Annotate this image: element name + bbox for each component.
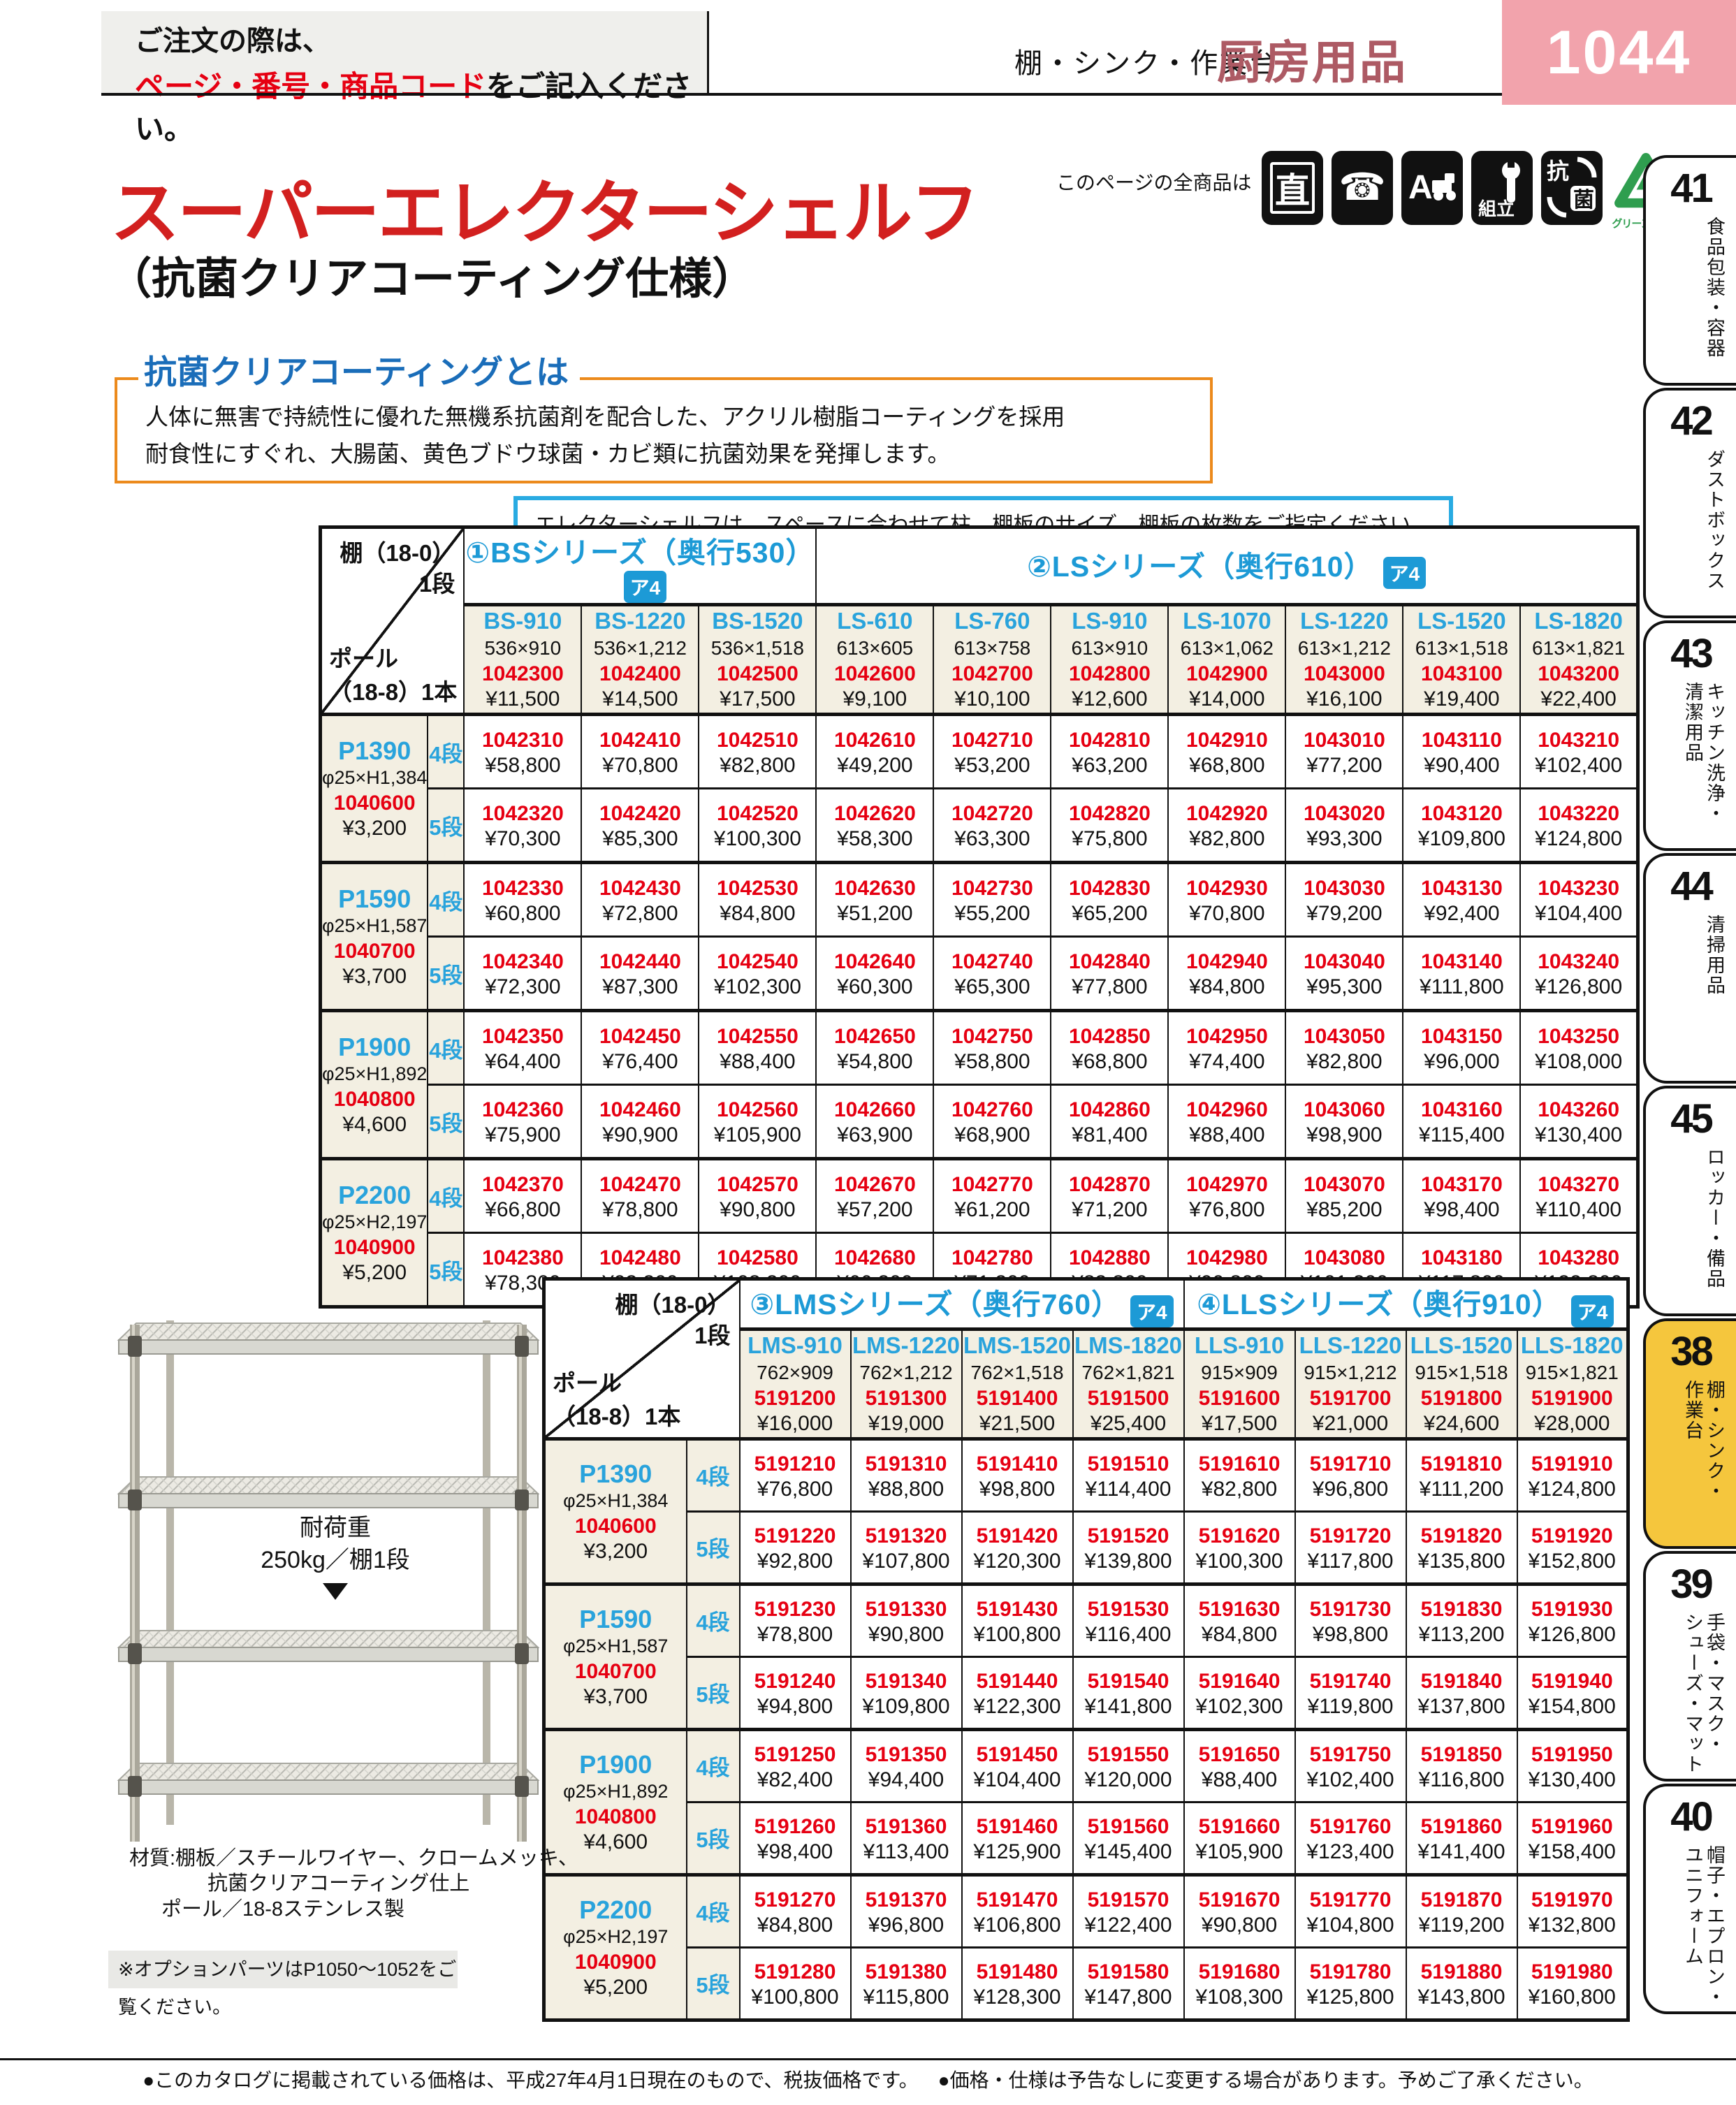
corner-shelf-label: 棚（18-0） — [340, 534, 455, 568]
pole-code: 1040900 — [546, 1951, 686, 1974]
product-price: ¥51,200 — [817, 902, 933, 926]
product-code: 5191840 — [1407, 1670, 1517, 1694]
product-code: 1043050 — [1286, 1025, 1402, 1049]
product-price: ¥63,200 — [1051, 754, 1167, 778]
product-code: 5191440 — [963, 1670, 1072, 1694]
product-price: ¥76,400 — [582, 1050, 698, 1074]
product-code: 1042650 — [817, 1025, 933, 1049]
product-price: ¥63,300 — [934, 827, 1050, 851]
product-price: ¥76,800 — [741, 1478, 850, 1501]
price-cell: 5191330¥90,800 — [851, 1584, 962, 1656]
product-code: 1043040 — [1286, 950, 1402, 974]
product-price: ¥107,800 — [852, 1550, 961, 1573]
price-row: 5段5191280¥100,8005191380¥115,8005191480¥… — [544, 1947, 1628, 2020]
column-header-cell: LMS-1520762×1,5185191400¥21,500 — [962, 1329, 1073, 1438]
product-code: 1042380 — [465, 1246, 581, 1270]
product-code: 5191540 — [1074, 1670, 1183, 1694]
price-cell: 1042430¥72,800 — [581, 863, 699, 937]
product-price: ¥74,400 — [1169, 1050, 1285, 1074]
product-code: 1042460 — [582, 1098, 698, 1122]
load-capacity-title: 耐荷重 — [300, 1515, 371, 1541]
price-cell: 5191850¥116,800 — [1406, 1729, 1517, 1802]
product-code: 1042520 — [699, 802, 815, 826]
phone-order-icon: ☎ — [1332, 151, 1393, 225]
product-price: ¥66,800 — [465, 1198, 581, 1222]
price-cell: 1042720¥63,300 — [933, 789, 1051, 863]
product-price: ¥154,800 — [1518, 1695, 1627, 1719]
product-code: 5191800 — [1407, 1387, 1517, 1411]
product-price: ¥82,800 — [1169, 827, 1285, 851]
tab-number: 41 — [1646, 165, 1736, 212]
product-code: 1042410 — [582, 729, 698, 752]
product-code: 1042470 — [582, 1173, 698, 1197]
product-code: 1043020 — [1286, 802, 1402, 826]
column-size: 762×1,212 — [852, 1362, 961, 1384]
corner-shelf-unit: 1段 — [694, 1317, 730, 1350]
product-price: ¥11,500 — [465, 687, 581, 711]
column-size: 613×605 — [817, 637, 933, 660]
product-price: ¥87,300 — [582, 975, 698, 999]
tier-label: 5段 — [687, 1947, 740, 2020]
price-row: P2200φ25×H2,1971040900¥5,2004段5191270¥84… — [544, 1874, 1628, 1947]
price-cell: 5191860¥141,400 — [1406, 1802, 1517, 1874]
column-name: LMS-1520 — [963, 1332, 1072, 1359]
price-cell: 5191960¥158,400 — [1517, 1802, 1628, 1874]
product-price: ¥78,800 — [582, 1198, 698, 1222]
product-code: 1043000 — [1286, 662, 1402, 686]
price-cell: 1042660¥63,900 — [816, 1085, 933, 1159]
product-code: 1042770 — [934, 1173, 1050, 1197]
product-code: 1042810 — [1051, 729, 1167, 752]
price-cell: 1042520¥100,300 — [699, 789, 816, 863]
product-code: 5191940 — [1518, 1670, 1627, 1694]
product-code: 5191740 — [1296, 1670, 1406, 1694]
material-line1: 材質:棚板／スチールワイヤー、クロームメッキ、 — [129, 1846, 578, 1871]
price-cell: 1042410¥70,800 — [581, 715, 699, 789]
product-code: 5191470 — [963, 1888, 1072, 1912]
price-cell: 1042830¥65,200 — [1051, 863, 1168, 937]
price-cell: 1042440¥87,300 — [581, 937, 699, 1011]
product-code: 5191500 — [1074, 1387, 1183, 1411]
product-price: ¥68,800 — [1169, 754, 1285, 778]
column-name: BS-910 — [465, 608, 581, 634]
product-price: ¥125,900 — [963, 1840, 1072, 1864]
column-size: 762×909 — [741, 1362, 850, 1384]
tab-label: 手袋・マスク・ シューズ・マット — [1682, 1612, 1725, 1779]
tab-number: 40 — [1646, 1793, 1736, 1840]
price-cell: 1042860¥81,400 — [1051, 1085, 1168, 1159]
price-cell: 5191760¥123,400 — [1295, 1802, 1406, 1874]
product-code: 5191460 — [963, 1815, 1072, 1839]
series-badge: ア4 — [1130, 1295, 1174, 1327]
sidebar-tab-42: 42 ダストボックス — [1643, 388, 1736, 618]
price-cell: 5191270¥84,800 — [740, 1874, 851, 1947]
price-cell: 5191480¥128,300 — [962, 1947, 1073, 2020]
column-header-cell: BS-1520536×1,5181042500¥17,500 — [699, 605, 816, 715]
product-code: 5191340 — [852, 1670, 961, 1694]
column-header-cell: LMS-910762×9095191200¥16,000 — [740, 1329, 851, 1438]
price-cell: 5191240¥94,800 — [740, 1656, 851, 1729]
tier-label: 4段 — [428, 715, 464, 789]
order-instruction-box: ご注文の際は、 ページ・番号・商品コードをご記入ください。 — [101, 11, 709, 94]
product-price: ¥114,400 — [1074, 1478, 1183, 1501]
product-price: ¥130,400 — [1521, 1123, 1636, 1147]
product-price: ¥14,000 — [1169, 687, 1285, 711]
product-code: 5191520 — [1074, 1524, 1183, 1548]
price-cell: 5191920¥152,800 — [1517, 1511, 1628, 1584]
product-code: 5191280 — [741, 1960, 850, 1984]
sidebar-tab-45: 45 ロッカー・備品 — [1643, 1086, 1736, 1316]
product-price: ¥88,400 — [1169, 1123, 1285, 1147]
price-cell: 5191220¥92,800 — [740, 1511, 851, 1584]
product-price: ¥124,800 — [1521, 827, 1636, 851]
product-price: ¥61,200 — [934, 1198, 1050, 1222]
pole-size: φ25×H1,384 — [322, 767, 427, 789]
price-cell: 1043050¥82,800 — [1285, 1011, 1403, 1085]
price-cell: 5191910¥124,800 — [1517, 1438, 1628, 1511]
product-code: 5191950 — [1518, 1743, 1627, 1767]
product-price: ¥90,800 — [852, 1623, 961, 1647]
column-size: 536×1,212 — [582, 637, 698, 660]
product-code: 1043100 — [1403, 662, 1519, 686]
price-cell: 1042750¥58,800 — [933, 1011, 1051, 1085]
price-cell: 5191940¥154,800 — [1517, 1656, 1628, 1729]
tab-label: 帽子・エプロン・ ユニフォーム — [1682, 1845, 1725, 2011]
product-price: ¥124,800 — [1518, 1478, 1627, 1501]
section-label: 厨房用品 — [1217, 25, 1407, 92]
product-code: 1042840 — [1051, 950, 1167, 974]
product-price: ¥113,200 — [1407, 1623, 1517, 1647]
tier-label: 5段 — [687, 1511, 740, 1584]
product-price: ¥135,800 — [1407, 1550, 1517, 1573]
product-code: 1042910 — [1169, 729, 1285, 752]
column-header-cell: LS-1070613×1,0621042900¥14,000 — [1168, 605, 1285, 715]
price-cell: 1043260¥130,400 — [1520, 1085, 1637, 1159]
price-cell: 1042470¥78,800 — [581, 1159, 699, 1233]
product-price: ¥92,800 — [741, 1550, 850, 1573]
product-price: ¥100,800 — [963, 1623, 1072, 1647]
column-name: LS-610 — [817, 608, 933, 634]
product-price: ¥105,900 — [699, 1123, 815, 1147]
price-cell: 5191830¥113,200 — [1406, 1584, 1517, 1656]
series-badge: ア4 — [1571, 1295, 1614, 1327]
product-code: 1042830 — [1051, 877, 1167, 901]
price-cell: 5191620¥100,300 — [1184, 1511, 1295, 1584]
price-cell: 5191880¥143,800 — [1406, 1947, 1517, 2020]
product-code: 1042980 — [1169, 1246, 1285, 1270]
product-price: ¥19,000 — [852, 1412, 961, 1436]
page-number: 1044 — [1502, 0, 1736, 105]
price-cell: 5191210¥76,800 — [740, 1438, 851, 1511]
product-code: 1043030 — [1286, 877, 1402, 901]
product-price: ¥28,000 — [1518, 1412, 1627, 1436]
product-code: 1043170 — [1403, 1173, 1519, 1197]
product-price: ¥132,800 — [1518, 1914, 1627, 1937]
price-cell: 5191720¥117,800 — [1295, 1511, 1406, 1584]
product-code: 5191970 — [1518, 1888, 1627, 1912]
product-code: 1042680 — [817, 1246, 933, 1270]
product-code: 5191750 — [1296, 1743, 1406, 1767]
product-code: 5191780 — [1296, 1960, 1406, 1984]
product-price: ¥126,800 — [1518, 1623, 1627, 1647]
pole-code: 1040600 — [322, 792, 427, 815]
product-price: ¥120,300 — [963, 1550, 1072, 1573]
product-price: ¥100,300 — [1185, 1550, 1294, 1573]
product-price: ¥17,500 — [699, 687, 815, 711]
product-price: ¥130,400 — [1518, 1768, 1627, 1792]
column-name: LS-1070 — [1169, 608, 1285, 634]
column-header-cell: LS-760613×7581042700¥10,100 — [933, 605, 1051, 715]
price-cell: 5191950¥130,400 — [1517, 1729, 1628, 1802]
product-price: ¥102,400 — [1296, 1768, 1406, 1792]
column-size: 915×1,821 — [1518, 1362, 1627, 1384]
product-code: 5191880 — [1407, 1960, 1517, 1984]
tier-label: 4段 — [687, 1438, 740, 1511]
column-name: LMS-1220 — [852, 1332, 961, 1359]
price-row: P2200φ25×H2,1971040900¥5,2004段1042370¥66… — [321, 1159, 1638, 1233]
product-price: ¥98,900 — [1286, 1123, 1402, 1147]
product-code: 1043220 — [1521, 802, 1636, 826]
product-price: ¥70,800 — [582, 754, 698, 778]
pole-name: P1390 — [546, 1459, 686, 1489]
product-price: ¥84,800 — [1169, 975, 1285, 999]
price-cell: 5191730¥98,800 — [1295, 1584, 1406, 1656]
column-name: LMS-910 — [741, 1332, 850, 1359]
price-cell: 1042840¥77,800 — [1051, 937, 1168, 1011]
price-row: 5段1042320¥70,3001042420¥85,3001042520¥10… — [321, 789, 1638, 863]
corner-shelf-label: 棚（18-0） — [615, 1286, 730, 1320]
price-cell: 1042420¥85,300 — [581, 789, 699, 863]
tab-number: 38 — [1646, 1328, 1736, 1375]
product-price: ¥100,300 — [699, 827, 815, 851]
product-price: ¥77,200 — [1286, 754, 1402, 778]
order-instruction-emphasis: ページ・番号・商品コード — [135, 70, 486, 103]
pole-cell: P2200φ25×H2,1971040900¥5,200 — [321, 1159, 428, 1307]
price-cell: 1042560¥105,900 — [699, 1085, 816, 1159]
product-code: 1042430 — [582, 877, 698, 901]
price-cell: 1042870¥71,200 — [1051, 1159, 1168, 1233]
column-header-cell: BS-1220536×1,2121042400¥14,500 — [581, 605, 699, 715]
price-cell: 1042610¥49,200 — [816, 715, 933, 789]
product-code: 1043260 — [1521, 1098, 1636, 1122]
product-code: 1042300 — [465, 662, 581, 686]
product-code: 5191430 — [963, 1598, 1072, 1622]
product-price: ¥65,200 — [1051, 902, 1167, 926]
column-name: LS-910 — [1051, 608, 1167, 634]
column-name: BS-1520 — [699, 608, 815, 634]
column-size: 613×910 — [1051, 637, 1167, 660]
product-code: 1042440 — [582, 950, 698, 974]
price-cell: 1043010¥77,200 — [1285, 715, 1403, 789]
product-code: 5191400 — [963, 1387, 1072, 1411]
product-price: ¥16,000 — [741, 1412, 850, 1436]
price-cell: 5191230¥78,800 — [740, 1584, 851, 1656]
product-code: 1042750 — [934, 1025, 1050, 1049]
product-code: 1042900 — [1169, 662, 1285, 686]
product-code: 1043180 — [1403, 1246, 1519, 1270]
tier-label: 5段 — [687, 1656, 740, 1729]
sidebar-tab-39: 39 手袋・マスク・ シューズ・マット — [1643, 1551, 1736, 1782]
coating-line2: 耐食性にすぐれ、大腸菌、黄色ブドウ球菌・カビ類に抗菌効果を発揮します。 — [145, 435, 1210, 472]
price-cell: 1042940¥84,800 — [1168, 937, 1285, 1011]
pole-cell: P1390φ25×H1,3841040600¥3,200 — [321, 715, 428, 863]
product-price: ¥17,500 — [1185, 1412, 1294, 1436]
product-code: 1043080 — [1286, 1246, 1402, 1270]
product-price: ¥108,300 — [1185, 1986, 1294, 2009]
product-price: ¥22,400 — [1521, 687, 1636, 711]
product-code: 5191720 — [1296, 1524, 1406, 1548]
material-note: 材質:棚板／スチールワイヤー、クロームメッキ、 抗菌クリアコーティング仕上 ポー… — [129, 1846, 578, 1922]
price-cell: 5191630¥84,800 — [1184, 1584, 1295, 1656]
product-code: 1042850 — [1051, 1025, 1167, 1049]
product-price: ¥119,800 — [1296, 1695, 1406, 1719]
pole-price: ¥5,200 — [322, 1261, 427, 1285]
product-code: 5191260 — [741, 1815, 850, 1839]
price-cell: 1042930¥70,800 — [1168, 863, 1285, 937]
column-name: LS-1220 — [1286, 608, 1402, 634]
product-price: ¥64,400 — [465, 1050, 581, 1074]
product-price: ¥94,800 — [741, 1695, 850, 1719]
corner-pole-label: ポール — [553, 1364, 622, 1398]
price-cell: 1043020¥93,300 — [1285, 789, 1403, 863]
product-price: ¥70,800 — [1169, 902, 1285, 926]
tab-number: 43 — [1646, 630, 1736, 677]
product-code: 1042330 — [465, 877, 581, 901]
pole-size: φ25×H2,197 — [322, 1211, 427, 1233]
down-arrow-icon — [323, 1583, 348, 1600]
product-code: 1043140 — [1403, 950, 1519, 974]
product-price: ¥119,200 — [1407, 1914, 1517, 1937]
svg-text:抗: 抗 — [1547, 159, 1569, 184]
tier-label: 5段 — [428, 937, 464, 1011]
column-size: 762×1,518 — [963, 1362, 1072, 1384]
pole-price: ¥3,200 — [546, 1540, 686, 1564]
product-code: 5191960 — [1518, 1815, 1627, 1839]
series-header-row: 棚（18-0）1段ポール（18-8）1本①BSシリーズ（奥行530）ア4②LSシ… — [321, 527, 1638, 605]
price-cell: 5191680¥108,300 — [1184, 1947, 1295, 2020]
product-code: 1042560 — [699, 1098, 815, 1122]
series-badge: ア4 — [1383, 557, 1427, 589]
product-code: 1042450 — [582, 1025, 698, 1049]
product-price: ¥102,300 — [699, 975, 815, 999]
product-code: 5191930 — [1518, 1598, 1627, 1622]
price-cell: 5191930¥126,800 — [1517, 1584, 1628, 1656]
product-code: 5191910 — [1518, 1452, 1627, 1476]
price-cell: 5191610¥82,800 — [1184, 1438, 1295, 1511]
price-cell: 1043240¥126,800 — [1520, 937, 1637, 1011]
tier-label: 4段 — [687, 1729, 740, 1802]
product-price: ¥85,200 — [1286, 1198, 1402, 1222]
price-cell: 5191750¥102,400 — [1295, 1729, 1406, 1802]
product-code: 5191370 — [852, 1888, 961, 1912]
price-cell: 5191670¥90,800 — [1184, 1874, 1295, 1947]
product-code: 5191270 — [741, 1888, 850, 1912]
price-cell: 1042770¥61,200 — [933, 1159, 1051, 1233]
product-code: 1042540 — [699, 950, 815, 974]
sidebar-tab-40: 40 帽子・エプロン・ ユニフォーム — [1643, 1784, 1736, 2014]
product-code: 5191630 — [1185, 1598, 1294, 1622]
product-code: 5191600 — [1185, 1387, 1294, 1411]
product-code: 5191810 — [1407, 1452, 1517, 1476]
product-price: ¥116,800 — [1407, 1768, 1517, 1792]
product-code: 1043110 — [1403, 729, 1519, 752]
sidebar-tab-38-current: 38 棚・シンク・ 作業台 — [1643, 1318, 1736, 1549]
price-cell: 5191840¥137,800 — [1406, 1656, 1517, 1729]
price-cell: 5191520¥139,800 — [1073, 1511, 1184, 1584]
series-title: ①BSシリーズ（奥行530） — [465, 537, 815, 569]
price-cell: 1042360¥75,900 — [464, 1085, 581, 1159]
price-cell: 1042350¥64,400 — [464, 1011, 581, 1085]
tab-label: キッチン洗浄・ 清潔用品 — [1682, 682, 1725, 848]
column-header-cell: BS-910536×9101042300¥11,500 — [464, 605, 581, 715]
price-cell: 1042460¥90,900 — [581, 1085, 699, 1159]
price-cell: 1042760¥68,900 — [933, 1085, 1051, 1159]
product-price: ¥77,800 — [1051, 975, 1167, 999]
price-cell: 5191710¥96,800 — [1295, 1438, 1406, 1511]
price-cell: 1042810¥63,200 — [1051, 715, 1168, 789]
price-cell: 1042320¥70,300 — [464, 789, 581, 863]
product-price: ¥92,400 — [1403, 902, 1519, 926]
price-cell: 5191260¥98,400 — [740, 1802, 851, 1874]
footer-note: ●このカタログに掲載されている価格は、平成27年4月1日現在のもので、税抜価格で… — [0, 2065, 1736, 2093]
direct-delivery-icon: 直 — [1262, 151, 1323, 225]
pole-size: φ25×H1,892 — [546, 1781, 686, 1802]
column-size: 613×1,518 — [1403, 637, 1519, 660]
product-price: ¥49,200 — [817, 754, 933, 778]
load-capacity-value: 250kg／棚1段 — [261, 1547, 410, 1573]
page-title: スーパーエレクターシェルフ — [110, 156, 977, 257]
tier-label: 5段 — [428, 789, 464, 863]
service-icon-row: 直 ☎ A 組立 抗 菌 — [1262, 151, 1681, 231]
column-header-cell: LS-610613×6051042600¥9,100 — [816, 605, 933, 715]
product-price: ¥84,800 — [1185, 1623, 1294, 1647]
product-price: ¥68,900 — [934, 1123, 1050, 1147]
price-row: P1900φ25×H1,8921040800¥4,6004段5191250¥82… — [544, 1729, 1628, 1802]
product-code: 5191560 — [1074, 1815, 1183, 1839]
product-price: ¥117,800 — [1296, 1550, 1406, 1573]
order-instruction-line1: ご注文の際は、 — [135, 18, 707, 59]
price-cell: 5191580¥147,800 — [1073, 1947, 1184, 2020]
product-price: ¥108,000 — [1521, 1050, 1636, 1074]
sidebar-tab-43: 43 キッチン洗浄・ 清潔用品 — [1643, 620, 1736, 851]
product-code: 1042920 — [1169, 802, 1285, 826]
product-price: ¥102,300 — [1185, 1695, 1294, 1719]
column-header-cell: LLS-1520915×1,5185191800¥24,600 — [1406, 1329, 1517, 1438]
product-code: 5191770 — [1296, 1888, 1406, 1912]
price-cell: 1043130¥92,400 — [1403, 863, 1520, 937]
series-title: ②LSシリーズ（奥行610） — [1027, 551, 1373, 583]
page-subtitle: （抗菌クリアコーティング仕様） — [108, 243, 755, 306]
product-code: 1042950 — [1169, 1025, 1285, 1049]
tier-label: 5段 — [428, 1085, 464, 1159]
product-price: ¥96,800 — [1296, 1478, 1406, 1501]
price-cell: 1042510¥82,800 — [699, 715, 816, 789]
svg-text:A: A — [1408, 169, 1433, 206]
product-code: 5191820 — [1407, 1524, 1517, 1548]
price-cell: 1043250¥108,000 — [1520, 1011, 1637, 1085]
product-code: 1043250 — [1521, 1025, 1636, 1049]
product-price: ¥79,200 — [1286, 902, 1402, 926]
product-price: ¥76,800 — [1169, 1198, 1285, 1222]
tab-number: 44 — [1646, 863, 1736, 910]
product-code: 1043060 — [1286, 1098, 1402, 1122]
product-price: ¥55,200 — [934, 902, 1050, 926]
price-cell: 1042850¥68,800 — [1051, 1011, 1168, 1085]
product-code: 1042320 — [465, 802, 581, 826]
pole-size: φ25×H1,587 — [322, 915, 427, 937]
svg-text:組立: 組立 — [1478, 198, 1515, 219]
material-line3: ポール／18-8ステンレス製 — [129, 1897, 578, 1922]
